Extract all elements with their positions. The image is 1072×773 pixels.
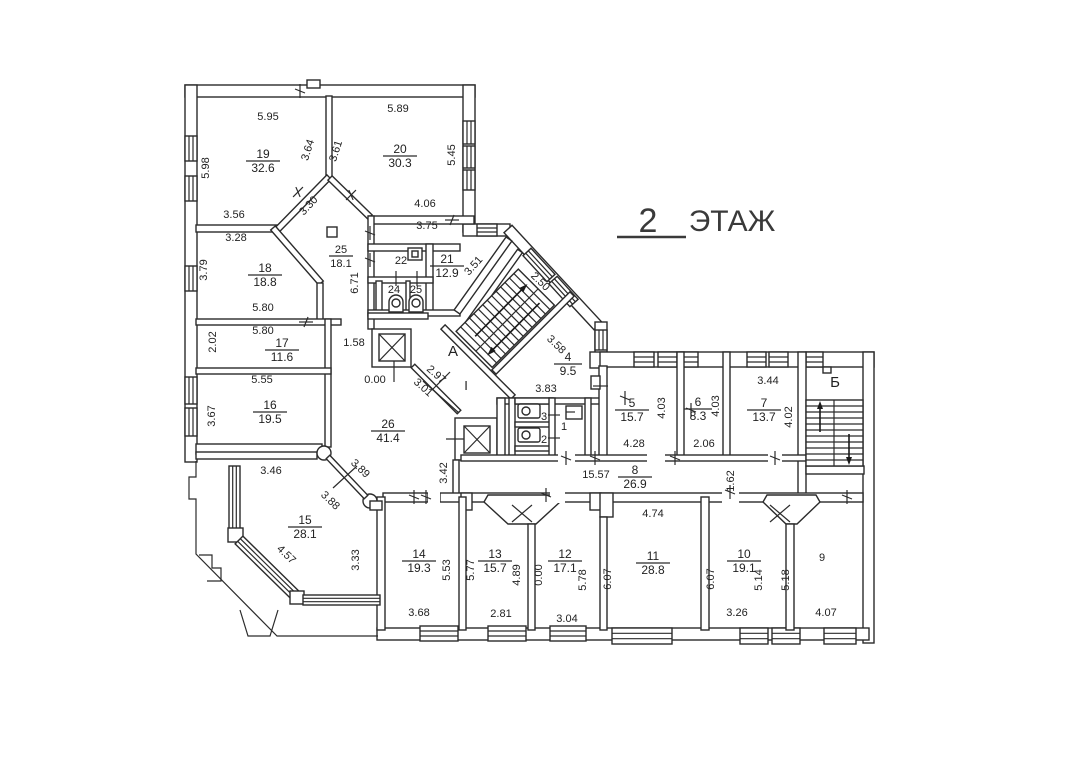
svg-text:4.03: 4.03	[710, 395, 722, 416]
svg-text:15: 15	[298, 513, 312, 527]
svg-text:4.06: 4.06	[414, 198, 435, 210]
svg-text:18: 18	[258, 261, 272, 275]
svg-text:5.53: 5.53	[441, 559, 453, 580]
svg-text:13.7: 13.7	[752, 410, 776, 424]
svg-text:3: 3	[541, 411, 547, 423]
svg-text:22: 22	[395, 255, 407, 267]
svg-text:2: 2	[541, 434, 547, 446]
svg-text:3.75: 3.75	[416, 220, 437, 232]
svg-text:13: 13	[488, 547, 502, 561]
svg-text:3.56: 3.56	[223, 209, 244, 221]
svg-text:4: 4	[565, 350, 572, 364]
svg-text:3.42: 3.42	[438, 462, 450, 483]
svg-text:5.55: 5.55	[251, 374, 272, 386]
svg-text:4.89: 4.89	[511, 564, 523, 585]
svg-text:3.26: 3.26	[726, 607, 747, 619]
svg-text:4.74: 4.74	[642, 508, 663, 520]
svg-text:3.28: 3.28	[225, 232, 246, 244]
svg-text:16: 16	[263, 398, 277, 412]
svg-text:2.02: 2.02	[207, 331, 219, 352]
svg-text:5: 5	[629, 396, 636, 410]
svg-text:17: 17	[275, 336, 289, 350]
svg-text:19.5: 19.5	[258, 412, 282, 426]
svg-text:17.1: 17.1	[553, 561, 577, 575]
svg-text:5.14: 5.14	[753, 569, 765, 590]
svg-text:21: 21	[440, 252, 454, 266]
svg-text:5.98: 5.98	[200, 157, 212, 178]
svg-text:3.33: 3.33	[350, 549, 362, 570]
svg-text:28.8: 28.8	[641, 563, 665, 577]
svg-text:1: 1	[561, 421, 567, 433]
svg-text:10: 10	[737, 547, 751, 561]
svg-text:5.80: 5.80	[252, 325, 273, 337]
svg-text:4.28: 4.28	[623, 438, 644, 450]
svg-text:19.3: 19.3	[407, 561, 431, 575]
svg-text:3.83: 3.83	[535, 383, 556, 395]
svg-text:5.18: 5.18	[780, 569, 792, 590]
svg-text:5.78: 5.78	[577, 569, 589, 590]
svg-text:ЭТАЖ: ЭТАЖ	[689, 205, 776, 238]
svg-text:7: 7	[761, 396, 768, 410]
svg-text:8: 8	[632, 463, 639, 477]
svg-text:30.3: 30.3	[388, 156, 412, 170]
svg-text:32.6: 32.6	[251, 161, 275, 175]
svg-text:5.45: 5.45	[446, 144, 458, 165]
svg-text:2.81: 2.81	[490, 608, 511, 620]
svg-text:5.89: 5.89	[387, 103, 408, 115]
svg-text:4.07: 4.07	[815, 607, 836, 619]
svg-text:5.77: 5.77	[465, 559, 477, 580]
svg-text:15.57: 15.57	[582, 469, 610, 481]
svg-text:24: 24	[388, 284, 400, 296]
svg-text:18.1: 18.1	[330, 258, 351, 270]
svg-text:12: 12	[558, 547, 572, 561]
svg-text:3.44: 3.44	[757, 375, 778, 387]
svg-text:6.07: 6.07	[705, 568, 717, 589]
svg-text:2.06: 2.06	[693, 438, 714, 450]
svg-text:4.03: 4.03	[656, 397, 668, 418]
svg-text:9.5: 9.5	[560, 364, 577, 378]
svg-text:1.62: 1.62	[725, 470, 737, 491]
svg-text:20: 20	[393, 142, 407, 156]
svg-text:14: 14	[412, 547, 426, 561]
svg-text:3.67: 3.67	[206, 405, 218, 426]
svg-text:А: А	[448, 343, 458, 360]
svg-text:26.9: 26.9	[623, 477, 647, 491]
svg-text:6.07: 6.07	[602, 568, 614, 589]
svg-text:0.00: 0.00	[533, 564, 545, 585]
svg-text:25: 25	[335, 244, 347, 256]
svg-text:3.79: 3.79	[198, 259, 210, 280]
svg-text:I: I	[464, 378, 468, 393]
svg-text:0.00: 0.00	[364, 374, 385, 386]
svg-text:26: 26	[381, 417, 395, 431]
svg-text:28.1: 28.1	[293, 527, 317, 541]
svg-text:6.71: 6.71	[349, 272, 361, 293]
svg-text:12.9: 12.9	[435, 266, 459, 280]
svg-text:11: 11	[647, 549, 660, 563]
svg-text:19: 19	[256, 147, 270, 161]
svg-text:6: 6	[695, 395, 702, 409]
svg-text:15.7: 15.7	[483, 561, 507, 575]
svg-text:5.95: 5.95	[257, 111, 278, 123]
svg-text:5.80: 5.80	[252, 302, 273, 314]
svg-text:18.8: 18.8	[253, 275, 277, 289]
svg-text:1.58: 1.58	[343, 337, 364, 349]
svg-text:9: 9	[819, 552, 825, 564]
svg-text:3.68: 3.68	[408, 607, 429, 619]
svg-text:41.4: 41.4	[376, 431, 400, 445]
svg-text:11.6: 11.6	[271, 350, 294, 364]
svg-text:4.02: 4.02	[783, 406, 795, 427]
svg-text:3.04: 3.04	[556, 613, 577, 625]
svg-text:Б: Б	[830, 374, 840, 391]
svg-text:2: 2	[639, 202, 658, 240]
svg-text:15.7: 15.7	[620, 410, 644, 424]
svg-text:3.46: 3.46	[260, 465, 281, 477]
svg-text:25: 25	[410, 284, 422, 296]
